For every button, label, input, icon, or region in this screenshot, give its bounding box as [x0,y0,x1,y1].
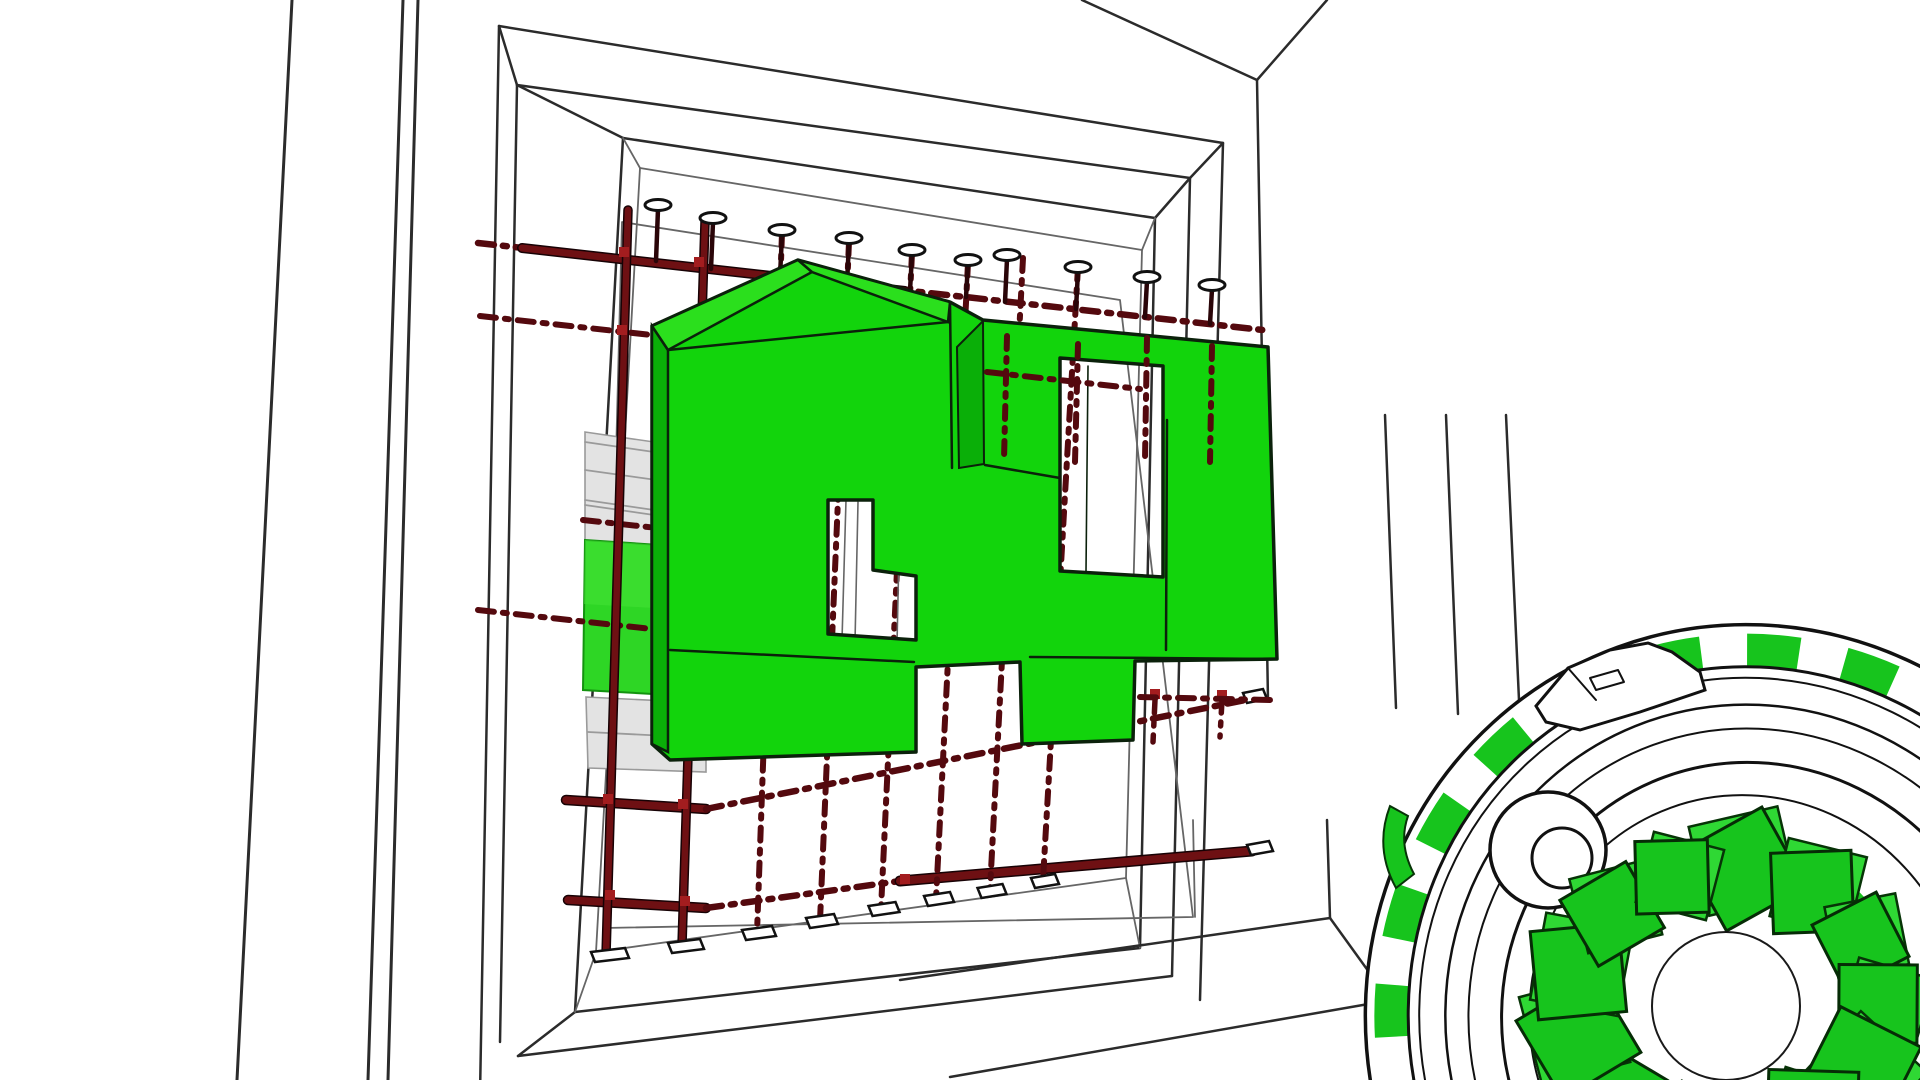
joint-accent [694,257,704,267]
wreath-cube [1635,840,1709,914]
bolt-head [1199,280,1225,291]
bolt-stem [1145,281,1147,317]
wreath-cube [1766,1069,1859,1080]
foot-plate [924,892,954,906]
foot-plate [869,902,900,916]
joint-accent [603,794,613,804]
joint-accent [605,890,615,900]
bolt-head [836,233,862,244]
bolt-stem [711,222,713,269]
foot-plate [591,948,629,962]
foot-plate [668,939,704,953]
bolt-head [899,245,925,256]
rebar-bar-dashed [1153,700,1155,742]
bolt-stem [966,264,968,297]
bolt-head [1134,272,1160,283]
bolt-stem [1005,259,1007,302]
slab-side-face [957,321,984,468]
bolt-stem [910,254,912,291]
foot-plate [742,926,776,940]
bolt-stem [1210,289,1212,324]
sculpture-seam [1166,420,1167,650]
bolt-stem [1076,271,1078,309]
foot-plate [1031,874,1059,888]
foot-plate [978,884,1007,898]
bolt-head [1065,262,1091,273]
sculpture-side-face [652,326,668,752]
joint-accent [900,874,910,884]
bolt-head [955,255,981,266]
bolt-head [769,225,795,236]
wreath-center-hole [1652,932,1800,1080]
scene-viewport [0,0,1920,1080]
foot-plate [806,914,838,928]
joint-accent [678,799,688,809]
foot-plate [1247,841,1273,855]
joint-accent [680,896,690,906]
bolt-stem [656,209,658,261]
bolt-head [700,213,726,224]
bolt-head [645,200,671,211]
bolt-head [994,250,1020,261]
joint-accent [619,247,629,257]
room-render [0,0,1920,1080]
joint-accent [617,325,627,335]
